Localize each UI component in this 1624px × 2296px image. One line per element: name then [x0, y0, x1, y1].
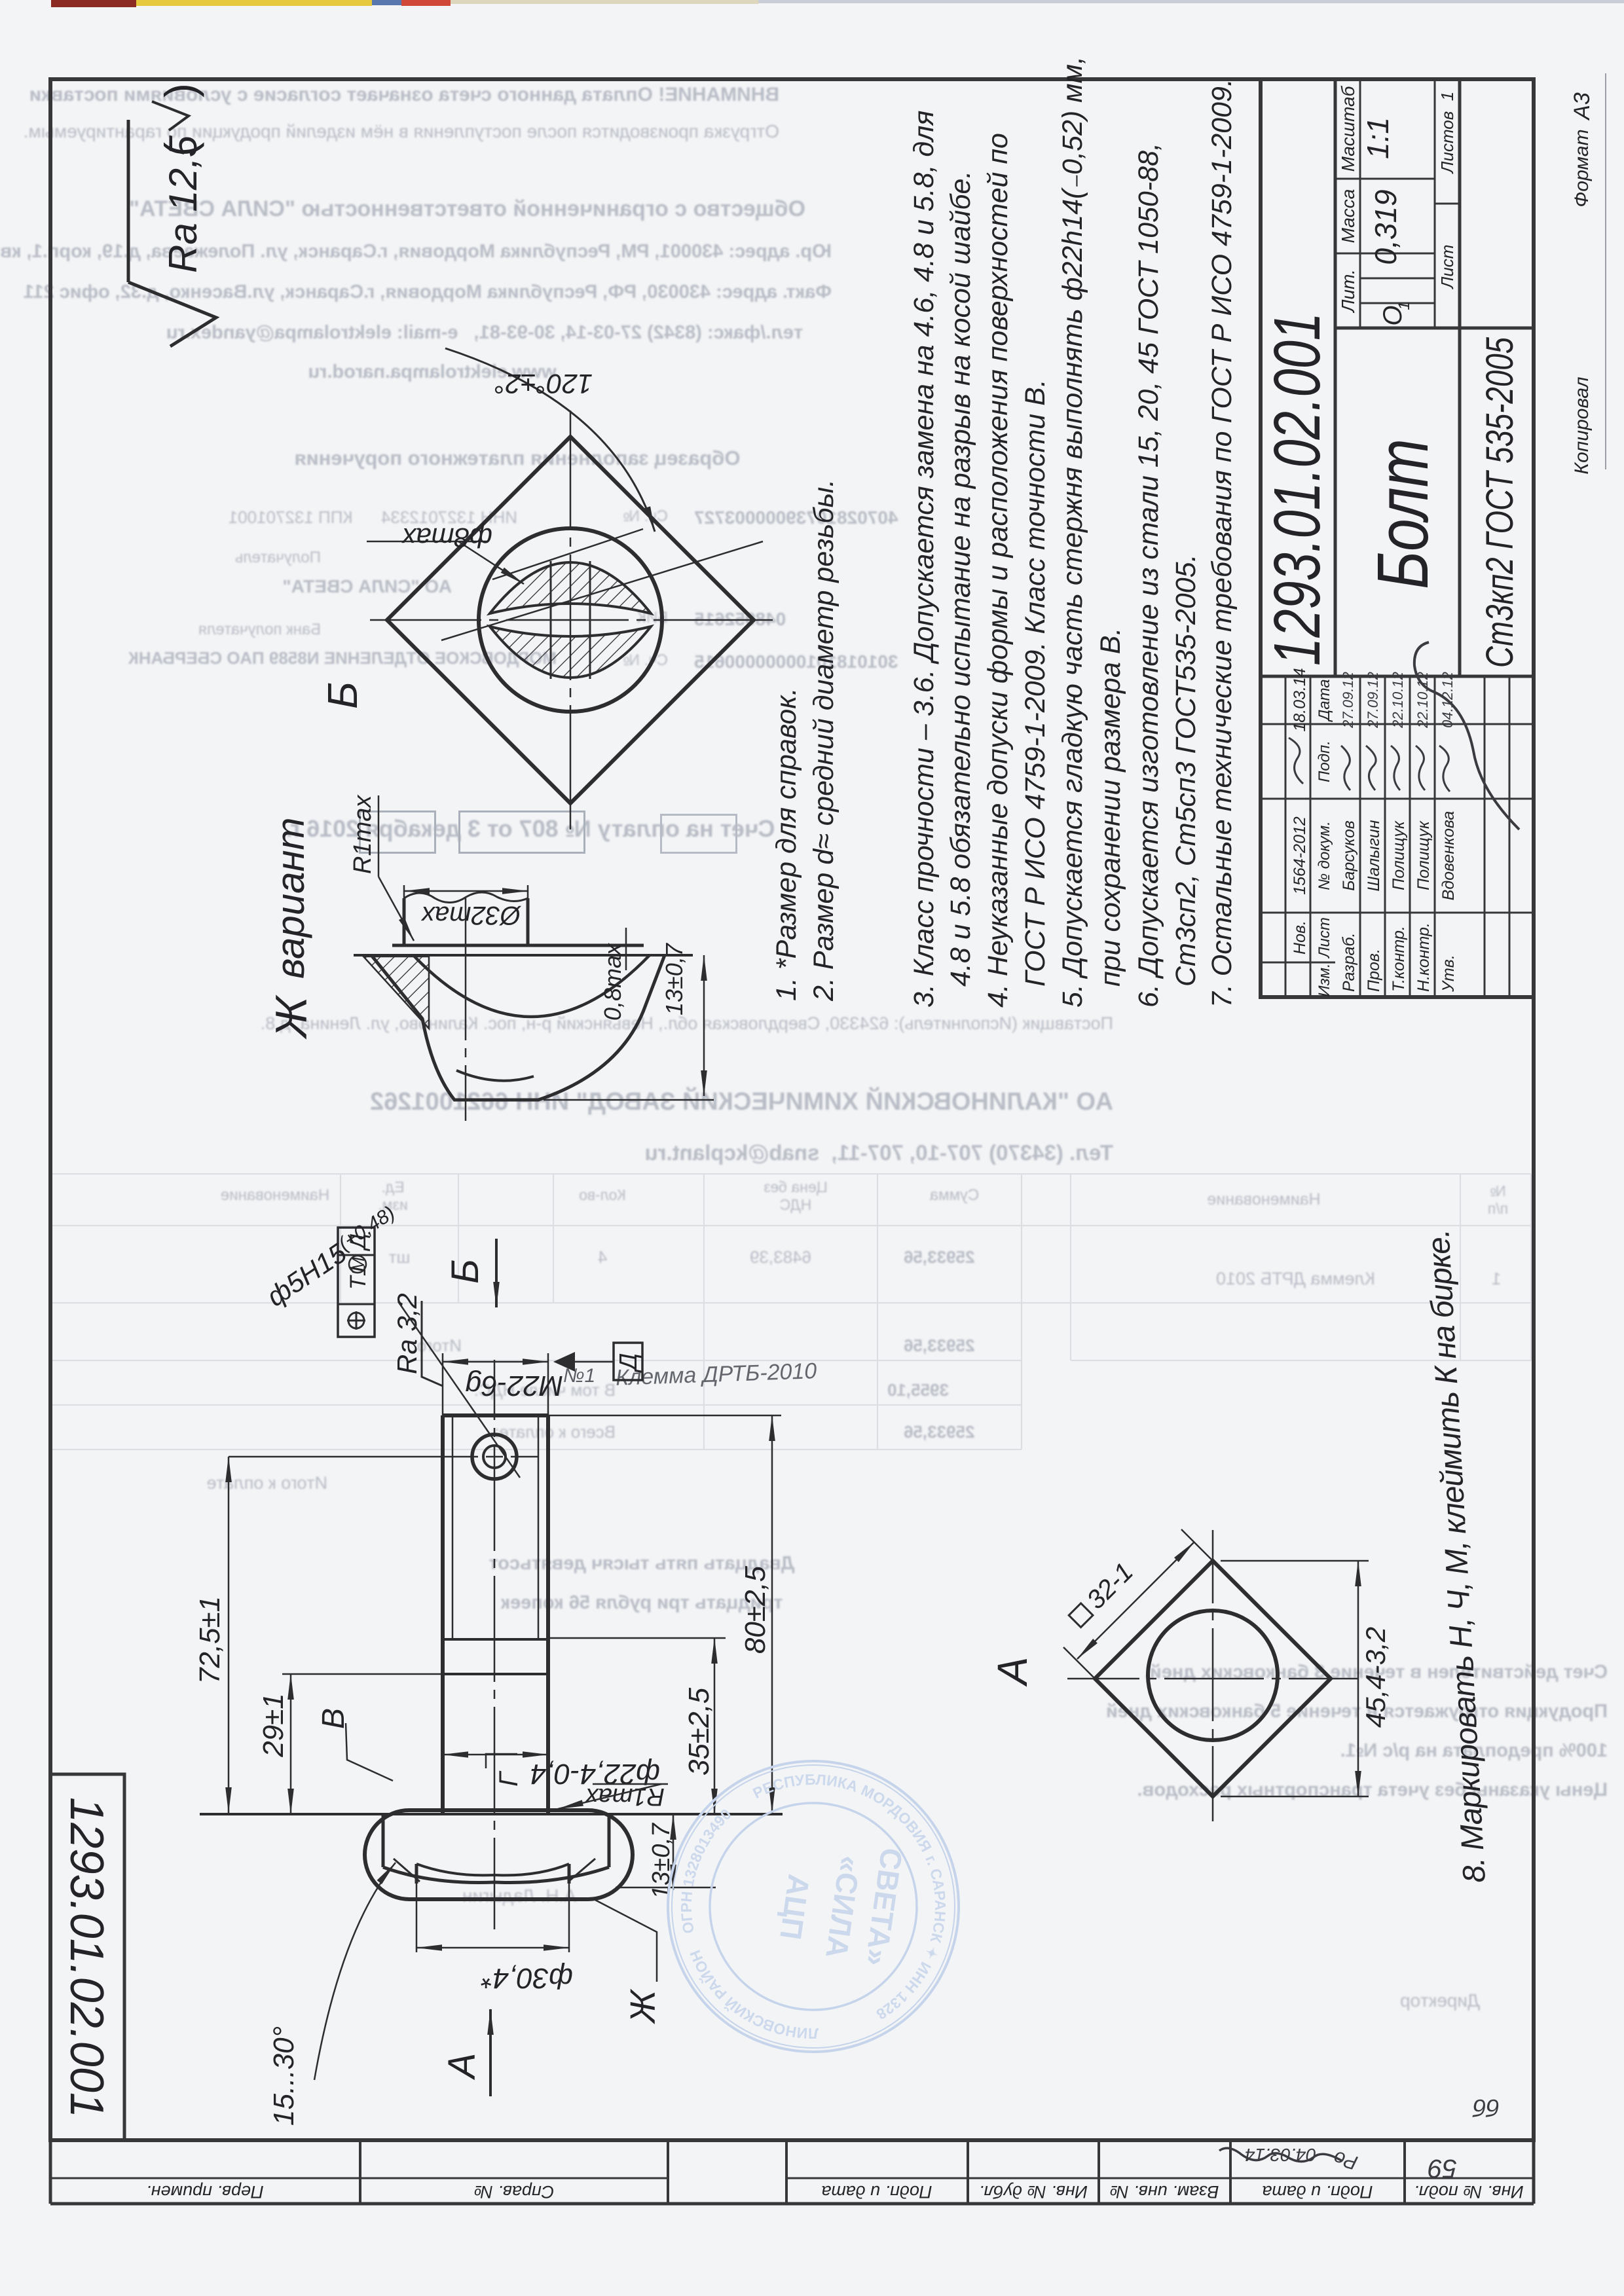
- svg-text:Ж: Ж: [267, 994, 316, 1040]
- svg-text:«СИЛА: «СИЛА: [819, 1853, 867, 1960]
- svg-text:13±0,7: 13±0,7: [648, 1822, 675, 1899]
- svg-text:Полищук: Полищук: [1390, 820, 1408, 890]
- svg-text:Барсуков: Барсуков: [1340, 820, 1358, 891]
- svg-text:Полищук: Полищук: [1414, 820, 1433, 890]
- svg-text:1564-2012: 1564-2012: [1291, 816, 1309, 895]
- svg-text:Разраб.: Разраб.: [1340, 933, 1358, 992]
- svg-text:Перв. примен.: Перв. примен.: [146, 2182, 263, 2202]
- svg-text:Пров.: Пров.: [1365, 949, 1383, 992]
- svg-text:Д: Д: [615, 1353, 642, 1374]
- svg-text:Копировал: Копировал: [1571, 376, 1593, 474]
- svg-text:1293.01.02.001: 1293.01.02.001: [60, 1797, 113, 2118]
- svg-text:РЕСПУБЛИКА МОРДОВИЯ: РЕСПУБЛИКА МОРДОВИЯ: [750, 1771, 934, 1855]
- svg-text:Изм.: Изм.: [1316, 963, 1333, 996]
- svg-text:М: М: [348, 1257, 368, 1271]
- svg-text:Нов.: Нов.: [1291, 920, 1309, 955]
- svg-text:Ø32max: Ø32max: [420, 901, 522, 930]
- svg-text:Н.контр.: Н.контр.: [1414, 922, 1433, 992]
- svg-text:Лист: Лист: [1316, 917, 1333, 959]
- svg-text:04.03.14: 04.03.14: [1245, 2145, 1316, 2165]
- svg-text:А: А: [989, 1657, 1036, 1688]
- svg-text:4. Неуказанные допуски формы и: 4. Неуказанные допуски формы и расположе…: [982, 133, 1014, 1008]
- svg-text:Ra 3,2: Ra 3,2: [392, 1293, 422, 1374]
- svg-text:8. Маркировать Н, Ч, М, клейми: 8. Маркировать Н, Ч, М, клеймить К на би…: [1421, 1228, 1492, 1884]
- svg-text:вариант: вариант: [268, 818, 312, 979]
- svg-text:Справ. №: Справ. №: [474, 2182, 555, 2202]
- svg-text:ф8max: ф8max: [401, 522, 492, 553]
- svg-text:Взам. инв. №: Взам. инв. №: [1110, 2182, 1219, 2202]
- svg-text:29±1: 29±1: [257, 1693, 289, 1758]
- svg-text:А3: А3: [1570, 92, 1595, 121]
- svg-text:Ст3кп2 ГОСТ 535-2005: Ст3кп2 ГОСТ 535-2005: [1479, 337, 1521, 668]
- svg-text:Масштаб: Масштаб: [1338, 85, 1358, 172]
- svg-text:22.10.12: 22.10.12: [1414, 672, 1431, 729]
- svg-text:Формат: Формат: [1571, 129, 1593, 207]
- svg-text:№ докум.: № докум.: [1316, 821, 1333, 890]
- svg-text:бб: бб: [1472, 2094, 1500, 2121]
- svg-text:27.09.12: 27.09.12: [1365, 672, 1381, 729]
- svg-text:ф30,4*: ф30,4*: [481, 1962, 573, 1994]
- svg-text:Б: Б: [444, 1259, 487, 1284]
- svg-text:27.09.12: 27.09.12: [1340, 672, 1356, 729]
- svg-text:1: 1: [1395, 301, 1413, 310]
- svg-text:Подп.: Подп.: [1316, 740, 1333, 782]
- svg-text:Ст3сп2, Ст5сп3 ГОСТ535-2005.: Ст3сп2, Ст5сп3 ГОСТ535-2005.: [1170, 554, 1202, 987]
- svg-text:0,319: 0,319: [1369, 189, 1403, 264]
- svg-text:при сохранении размера В.: при сохранении размера В.: [1095, 628, 1126, 987]
- svg-text:А: А: [441, 2053, 483, 2081]
- svg-text:R1max: R1max: [349, 794, 377, 874]
- svg-text:22.10.12: 22.10.12: [1390, 672, 1406, 729]
- svg-text:Т.контр.: Т.контр.: [1390, 926, 1408, 992]
- svg-text:ОГРН 1328013490: ОГРН 1328013490: [678, 1806, 735, 1935]
- svg-text:Ро: Ро: [1331, 2147, 1360, 2174]
- svg-text:15...30°: 15...30°: [268, 2026, 300, 2126]
- svg-text:1:1: 1:1: [1361, 117, 1395, 159]
- svg-text:2. Размер d≈ средний диаметр р: 2. Размер d≈ средний диаметр резьбы.: [808, 479, 840, 1002]
- svg-text:1293.01.02.001: 1293.01.02.001: [1261, 312, 1334, 666]
- svg-text:Б: Б: [319, 682, 366, 709]
- svg-text:59: 59: [1428, 2154, 1458, 2183]
- svg-text:3. Класс прочности – 3.6. Допу: 3. Класс прочности – 3.6. Допускается за…: [908, 111, 940, 1008]
- svg-text:4.8 и 5.8 обязательно испытани: 4.8 и 5.8 обязательно испытание на разры…: [945, 171, 976, 987]
- svg-text:35±2,5: 35±2,5: [683, 1687, 715, 1776]
- svg-text:1. *Размер для справок.: 1. *Размер для справок.: [771, 687, 802, 1001]
- svg-text:АЦП: АЦП: [773, 1872, 816, 1942]
- svg-text:18.03.14: 18.03.14: [1291, 668, 1309, 731]
- svg-text:Листов: Листов: [1437, 111, 1457, 175]
- svg-text:М22-6g: М22-6g: [465, 1370, 563, 1402]
- svg-text:ГОСТ Р ИСО 4759-1-2009. Класс: ГОСТ Р ИСО 4759-1-2009. Класс точности В…: [1020, 379, 1051, 987]
- svg-text:1: 1: [1437, 92, 1457, 101]
- svg-text:5. Допускается гладкую часть с: 5. Допускается гладкую часть стержня вып…: [1057, 56, 1088, 1008]
- svg-text:Вдовенкова: Вдовенкова: [1439, 811, 1458, 901]
- svg-text:0,8max: 0,8max: [599, 942, 626, 1021]
- svg-text:Подп. и дата: Подп. и дата: [821, 2182, 932, 2202]
- svg-text:Лит.: Лит.: [1338, 269, 1358, 314]
- svg-text:Дата: Дата: [1316, 679, 1333, 722]
- svg-text:Подп. и дата: Подп. и дата: [1262, 2182, 1373, 2202]
- svg-text:Инв. № дубл.: Инв. № дубл.: [979, 2182, 1088, 2202]
- svg-text:Лист: Лист: [1437, 245, 1457, 290]
- svg-text:72,5±1: 72,5±1: [194, 1596, 226, 1684]
- svg-text:Г: Г: [494, 1770, 523, 1787]
- svg-text:Болт: Болт: [1363, 439, 1443, 589]
- svg-text:): ): [156, 83, 204, 98]
- svg-text:Масса: Масса: [1338, 189, 1358, 244]
- svg-text:120°±2°: 120°±2°: [494, 369, 593, 399]
- svg-text:Инв. № подл.: Инв. № подл.: [1414, 2182, 1524, 2202]
- svg-text:13±0,7: 13±0,7: [661, 942, 688, 1015]
- svg-text:(: (: [156, 142, 204, 156]
- svg-text:Ж: Ж: [623, 1988, 663, 2025]
- svg-text:7. Остальные технические требо: 7. Остальные технические требования по Г…: [1206, 79, 1238, 1008]
- svg-text:45,4-3,2: 45,4-3,2: [1360, 1627, 1391, 1728]
- svg-text:ф5Н15(+0,48): ф5Н15(+0,48): [261, 1202, 404, 1312]
- svg-text:80±2,5: 80±2,5: [739, 1565, 771, 1654]
- svg-text:Утв.: Утв.: [1439, 955, 1458, 993]
- svg-text:6. Допускается изготовление из: 6. Допускается изготовление из стали 15,…: [1133, 143, 1164, 1008]
- svg-text:Шалыгин: Шалыгин: [1365, 820, 1383, 891]
